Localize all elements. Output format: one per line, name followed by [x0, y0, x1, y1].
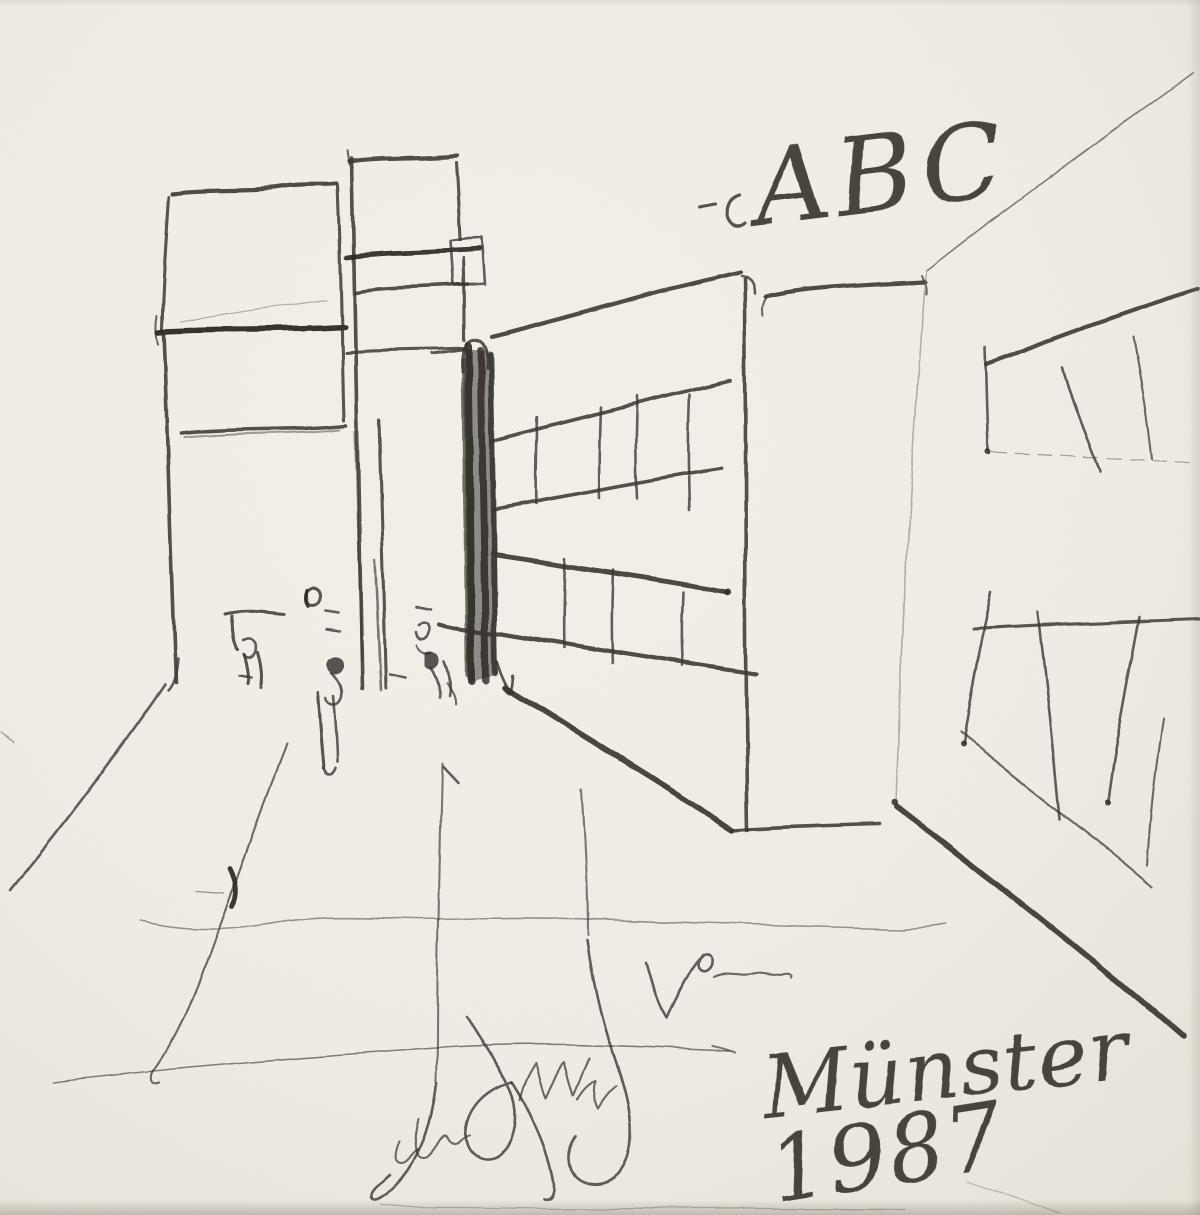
window-mullion: [612, 570, 613, 663]
stroke-end-blob: [985, 449, 991, 455]
bottom-edge-shadow: [0, 1200, 1200, 1215]
top-edge-shadow: [0, 0, 1200, 7]
stroke-end-blob: [959, 742, 965, 748]
window-mullion: [536, 417, 537, 503]
stroke-end-blob: [726, 589, 733, 596]
sketch-canvas: ABC Münster 1987: [0, 0, 1200, 1215]
window-mullion: [636, 397, 637, 498]
stroke-end-blob: [1104, 801, 1110, 807]
window-mullion: [599, 407, 600, 497]
window-mullion: [682, 592, 683, 666]
right-edge-shadow: [1188, 0, 1200, 1215]
window-mullion: [564, 558, 565, 648]
scanned-pencil-sketch: ABC Münster 1987: [0, 0, 1200, 1215]
window-mullion: [689, 395, 690, 510]
tower-right-edge-lower: [463, 258, 464, 340]
